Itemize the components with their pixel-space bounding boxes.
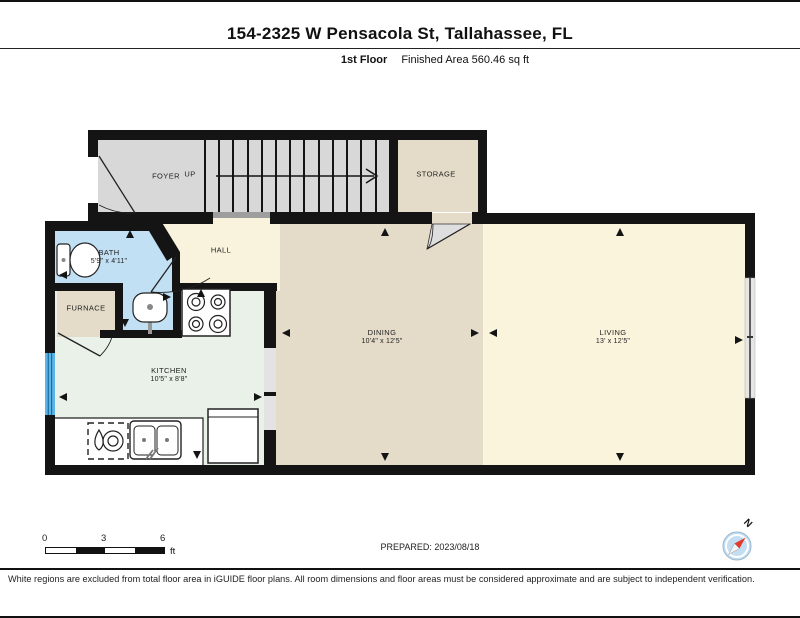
stair-up-label: UP [184,170,195,179]
room-label-living: LIVING 13' x 12'5" [596,328,630,346]
wall [264,430,276,475]
room-label-hall: HALL [211,246,231,255]
wall [745,398,755,475]
scale-bar [45,547,165,554]
wall [45,465,755,475]
stair-cut-strip [213,212,270,218]
room-label-foyer: FOYER [152,172,180,181]
scale-tick-0: 0 [42,533,47,544]
compass-icon [723,532,751,560]
wall [88,130,98,157]
floorplan-drawing [0,0,800,618]
wall [264,392,276,396]
wall [100,330,182,338]
scale-tick-6: 6 [160,533,165,544]
scale-segment [76,548,106,553]
wall [50,283,122,291]
scale-segment [135,548,165,553]
floorplan-page: 154-2325 W Pensacola St, Tallahassee, FL… [0,0,800,618]
scale-unit-label: ft [170,546,175,557]
refrigerator-icon [208,409,258,463]
double-sink-icon [130,421,181,459]
floor-furnace [57,290,115,337]
wall [478,130,487,224]
room-label-bath: BATH 5'9" x 4'11" [91,248,127,266]
room-label-furnace: FURNACE [66,304,105,313]
room-label-kitchen: KITCHEN 10'5" x 8'8" [151,366,188,384]
disclaimer-text: White regions are excluded from total fl… [8,574,792,584]
stove-icon [182,289,230,336]
room-label-storage: STORAGE [416,170,455,179]
wall [745,213,755,278]
wall [270,212,432,224]
room-label-dining: DINING 10'4" x 12'5" [362,328,403,346]
entry-door-opening [88,157,98,203]
wall [390,130,398,212]
scale-segment [105,548,135,553]
prepared-date: PREPARED: 2023/08/18 [290,542,570,552]
wall [478,213,755,224]
kitchen-window [45,353,55,415]
wall [115,283,123,337]
wall [45,221,150,231]
kitchen-pass-opening [264,396,276,430]
scale-segment [46,548,76,553]
footer-divider [0,568,800,570]
scale-tick-3: 3 [101,533,106,544]
wall [88,130,487,140]
wall [264,283,276,348]
kitchen-pass-opening [264,348,276,392]
